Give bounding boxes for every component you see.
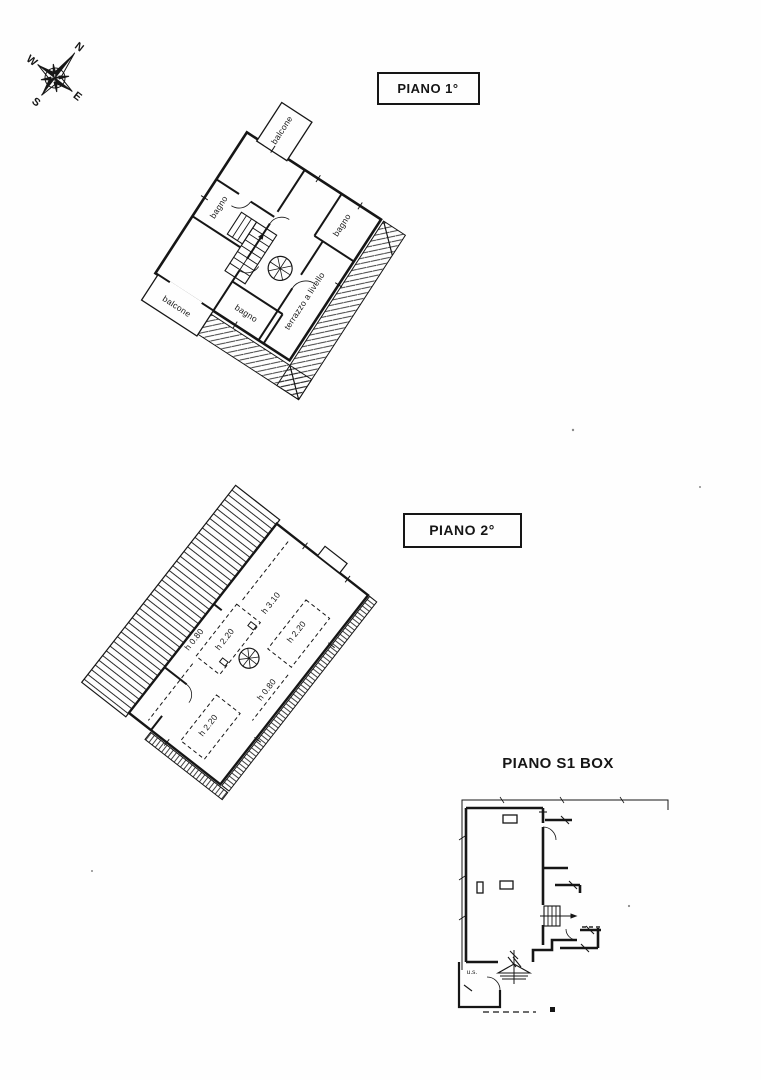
floor2-title: PIANO 2° — [429, 522, 495, 538]
compass-rose: N E S W — [5, 21, 108, 127]
floor1-title: PIANO 1° — [397, 81, 458, 96]
compass-north-label: N — [72, 40, 86, 54]
floorS1-ramp — [498, 950, 530, 984]
compass-west-label: W — [24, 53, 40, 69]
floorS1-plan: u.s. — [459, 797, 668, 1012]
floorS1-staircase — [540, 906, 574, 926]
floorS1-door-arcs — [487, 827, 577, 990]
floorS1-marker-square — [550, 1007, 555, 1012]
compass-east-label: E — [71, 90, 84, 104]
floor1-title-box: PIANO 1° — [378, 73, 479, 104]
floor-plan-sheet: N E S W PIANO 1° balcone balcone — [0, 0, 761, 1080]
floor-plan-drawing: N E S W PIANO 1° balcone balcone — [0, 0, 761, 1080]
floorS1-dimension-ticks — [464, 812, 594, 991]
floor2-plan: h 2.20 h 3.10 h 0.80 h 2.20 h 0.80 h 2.2… — [78, 480, 384, 800]
floor1-plan: balcone balcone — [136, 93, 430, 401]
floorS1-main-walls — [466, 808, 601, 962]
compass-south-label: S — [29, 95, 42, 109]
floorS1-service-room: u.s. — [459, 962, 500, 1007]
floorS1-boundary-ticks — [459, 797, 624, 920]
floor2-title-box: PIANO 2° — [404, 514, 521, 547]
floorS1-title: PIANO S1 BOX — [502, 755, 614, 772]
floorS1-pillars — [477, 815, 517, 893]
exit-label: u.s. — [467, 969, 478, 976]
